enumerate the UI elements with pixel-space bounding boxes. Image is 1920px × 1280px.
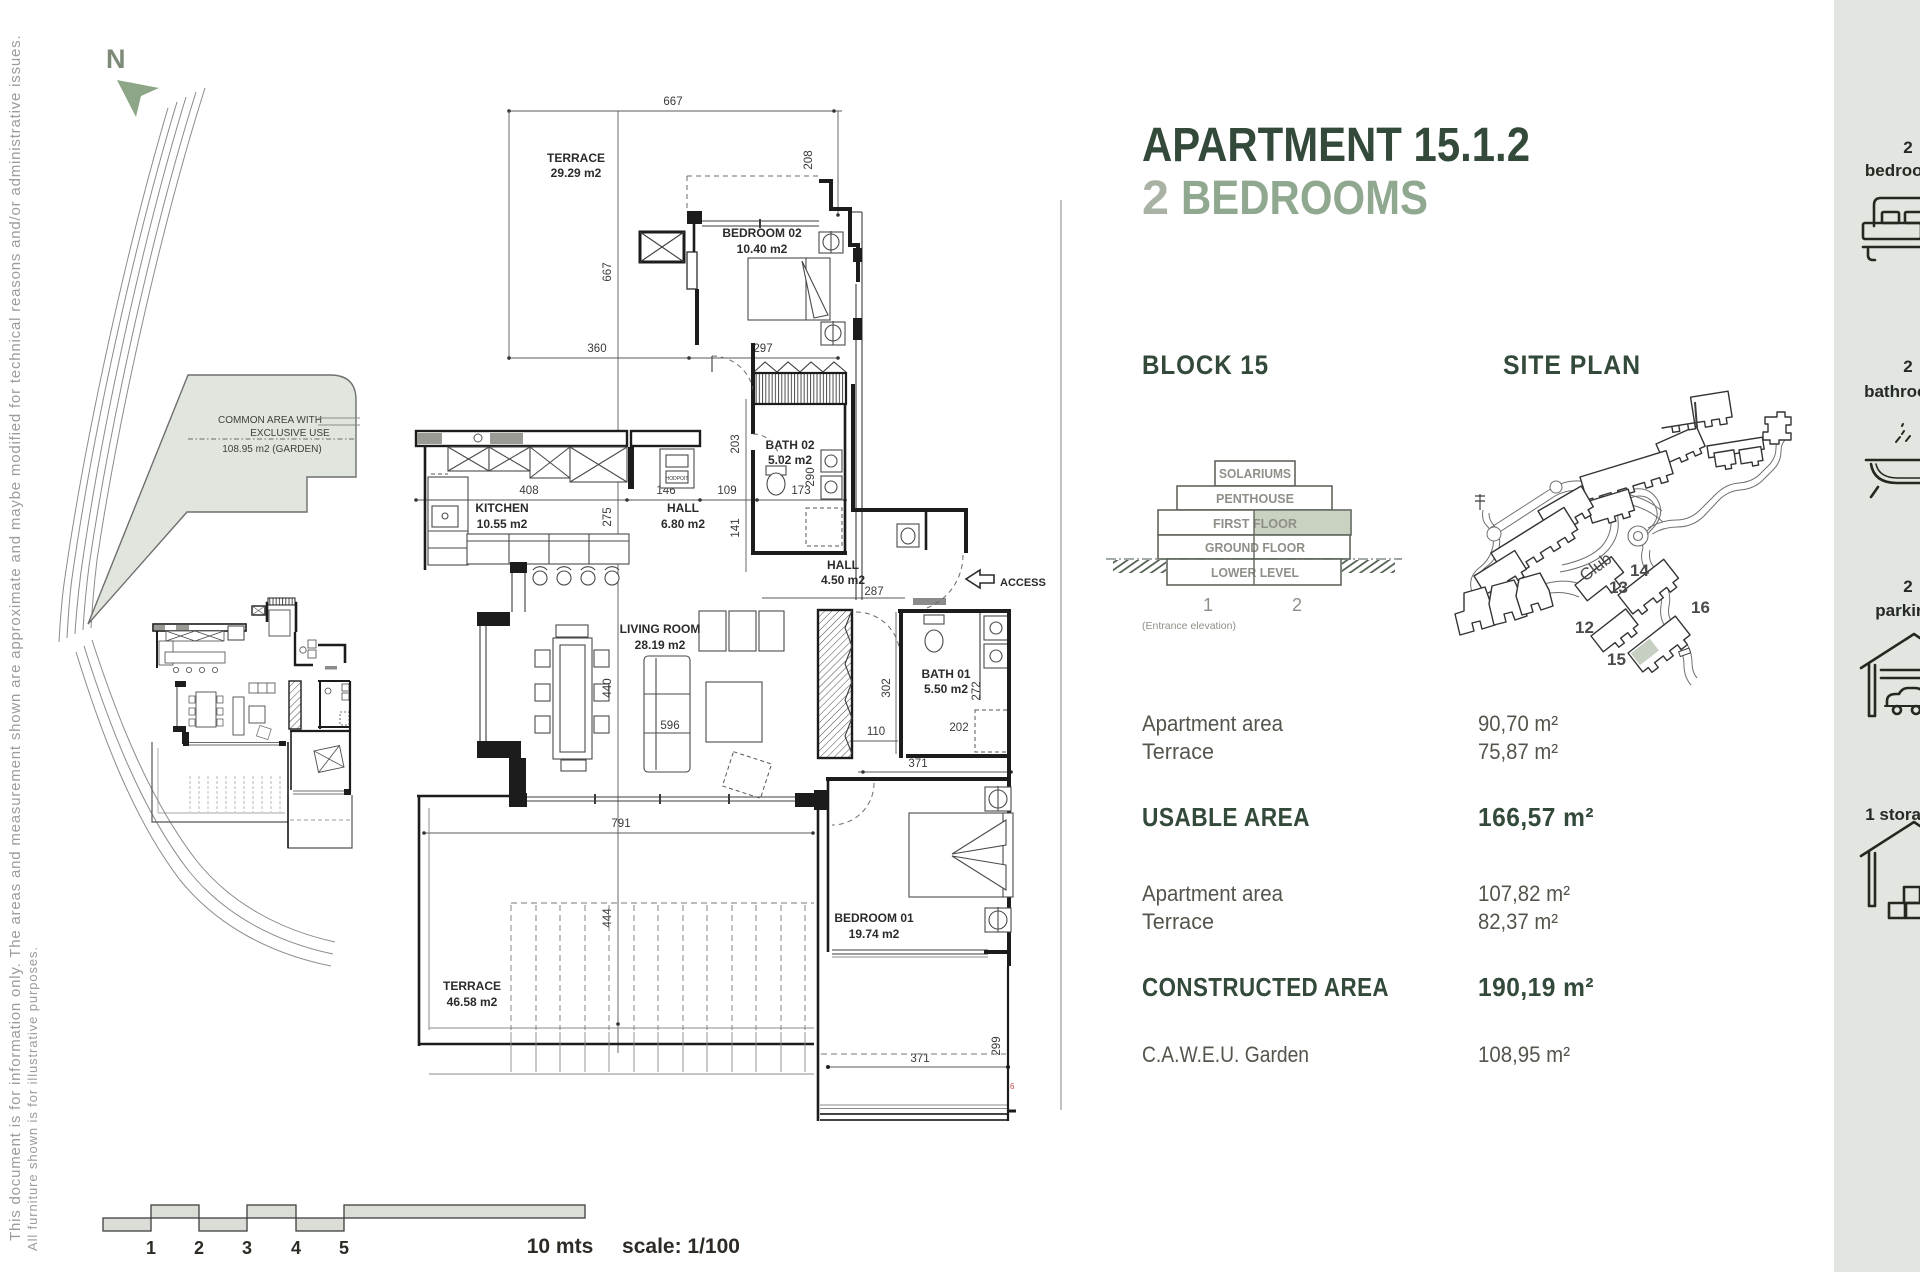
svg-text:29.29 m2: 29.29 m2 [551,166,602,180]
svg-text:COMMON AREA WITH: COMMON AREA WITH [218,415,322,426]
svg-text:75,87 m²: 75,87 m² [1478,739,1558,764]
svg-text:1: 1 [146,1238,156,1258]
svg-text:190,19 m²: 190,19 m² [1478,972,1594,1002]
svg-text:667: 667 [602,262,614,281]
svg-text:BEDROOM 01: BEDROOM 01 [834,911,914,925]
svg-text:5.50 m2: 5.50 m2 [924,682,968,696]
svg-text:Terrace: Terrace [1142,739,1214,764]
svg-text:parking: parking [1875,601,1920,620]
svg-text:5: 5 [339,1238,349,1258]
svg-text:CONSTRUCTED AREA: CONSTRUCTED AREA [1142,972,1389,1002]
svg-text:2: 2 [1142,172,1169,225]
svg-text:HODPOIT: HODPOIT [666,476,689,482]
svg-text:4: 4 [291,1238,301,1258]
svg-text:Apartment area: Apartment area [1142,881,1284,906]
svg-text:BEDROOM 02: BEDROOM 02 [722,226,802,240]
svg-text:SITE PLAN: SITE PLAN [1503,350,1641,380]
svg-text:202: 202 [949,722,968,734]
svg-text:6.80 m2: 6.80 m2 [661,517,705,531]
svg-text:10.40 m2: 10.40 m2 [737,242,788,256]
svg-text:302: 302 [881,678,893,697]
svg-text:371: 371 [908,758,927,770]
svg-text:HALL: HALL [667,501,699,515]
svg-text:1 storage: 1 storage [1865,805,1920,824]
svg-text:2: 2 [1292,595,1302,615]
svg-text:444: 444 [602,908,614,928]
svg-text:SOLARIUMS: SOLARIUMS [1219,467,1291,481]
svg-text:15: 15 [1607,650,1626,669]
svg-text:28.19 m2: 28.19 m2 [635,638,686,652]
svg-text:371: 371 [910,1053,929,1065]
svg-text:16: 16 [1691,598,1710,617]
svg-text:GROUND FLOOR: GROUND FLOOR [1205,541,1305,555]
svg-text:Apartment area: Apartment area [1142,711,1284,736]
svg-text:90,70 m²: 90,70 m² [1478,711,1558,736]
svg-text:13: 13 [1609,578,1628,597]
svg-text:BATH 01: BATH 01 [921,667,970,681]
svg-text:166,57 m²: 166,57 m² [1478,802,1594,832]
svg-text:19.74 m2: 19.74 m2 [849,927,900,941]
svg-text:108.95 m2 (GARDEN): 108.95 m2 (GARDEN) [222,444,321,455]
svg-text:bathrooms: bathrooms [1864,382,1920,401]
svg-text:108,95 m²: 108,95 m² [1478,1042,1570,1067]
svg-text:KITCHEN: KITCHEN [475,501,528,515]
svg-text:2: 2 [1903,138,1912,157]
svg-text:10 mts: 10 mts [527,1235,594,1258]
svg-text:2: 2 [1903,357,1912,376]
svg-text:297: 297 [753,343,772,355]
svg-text:141: 141 [730,518,742,537]
svg-text:N: N [106,44,126,74]
svg-text:LIVING ROOM: LIVING ROOM [620,622,701,636]
svg-text:5.02 m2: 5.02 m2 [768,453,812,467]
svg-text:TERRACE: TERRACE [443,979,501,993]
svg-text:All furniture shown is for ill: All furniture shown is for illustrative … [25,946,40,1251]
svg-text:107,82 m²: 107,82 m² [1478,881,1570,906]
svg-text:APARTMENT 15.1.2: APARTMENT 15.1.2 [1142,119,1530,172]
svg-text:12: 12 [1575,618,1594,637]
svg-text:C.A.W.E.U. Garden: C.A.W.E.U. Garden [1142,1042,1309,1067]
svg-text:203: 203 [730,434,742,453]
svg-text:EXCLUSIVE USE: EXCLUSIVE USE [250,428,330,439]
svg-text:This document is for informati: This document is for information only. T… [7,35,24,1241]
svg-text:TERRACE: TERRACE [547,151,605,165]
svg-text:3: 3 [242,1238,252,1258]
svg-text:1: 1 [1203,595,1213,615]
svg-text:ACCESS: ACCESS [1000,577,1046,589]
svg-text:791: 791 [611,818,630,830]
svg-text:6: 6 [1010,1082,1015,1091]
svg-text:14: 14 [1630,561,1649,580]
svg-text:2: 2 [194,1238,204,1258]
svg-text:FIRST FLOOR: FIRST FLOOR [1213,517,1297,531]
svg-text:596: 596 [660,720,679,732]
svg-text:667: 667 [663,96,682,108]
svg-text:82,37 m²: 82,37 m² [1478,909,1558,934]
svg-text:10.55 m2: 10.55 m2 [477,517,528,531]
svg-text:4.50 m2: 4.50 m2 [821,573,865,587]
svg-text:(Entrance elevation): (Entrance elevation) [1142,620,1236,632]
svg-text:109: 109 [717,485,736,497]
svg-text:110: 110 [867,726,885,738]
svg-text:BATH 02: BATH 02 [765,438,814,452]
svg-text:Terrace: Terrace [1142,909,1214,934]
svg-text:USABLE AREA: USABLE AREA [1142,802,1310,832]
svg-text:bedrooms: bedrooms [1865,161,1920,180]
svg-text:BEDROOMS: BEDROOMS [1181,172,1428,225]
svg-text:208: 208 [803,150,815,169]
svg-text:46.58 m2: 46.58 m2 [447,995,498,1009]
svg-text:360: 360 [587,343,606,355]
svg-text:287: 287 [864,586,883,598]
svg-text:275: 275 [602,507,614,526]
svg-text:272: 272 [971,681,983,700]
svg-text:HALL: HALL [827,558,859,572]
svg-text:290: 290 [805,467,817,486]
svg-text:408: 408 [519,485,538,497]
svg-text:440: 440 [602,678,614,697]
svg-text:LOWER LEVEL: LOWER LEVEL [1211,566,1299,580]
svg-text:scale: 1/100: scale: 1/100 [622,1235,740,1258]
svg-text:2: 2 [1903,577,1912,596]
svg-text:BLOCK 15: BLOCK 15 [1142,350,1269,380]
svg-text:PENTHOUSE: PENTHOUSE [1216,492,1294,506]
svg-text:299: 299 [991,1036,1003,1055]
